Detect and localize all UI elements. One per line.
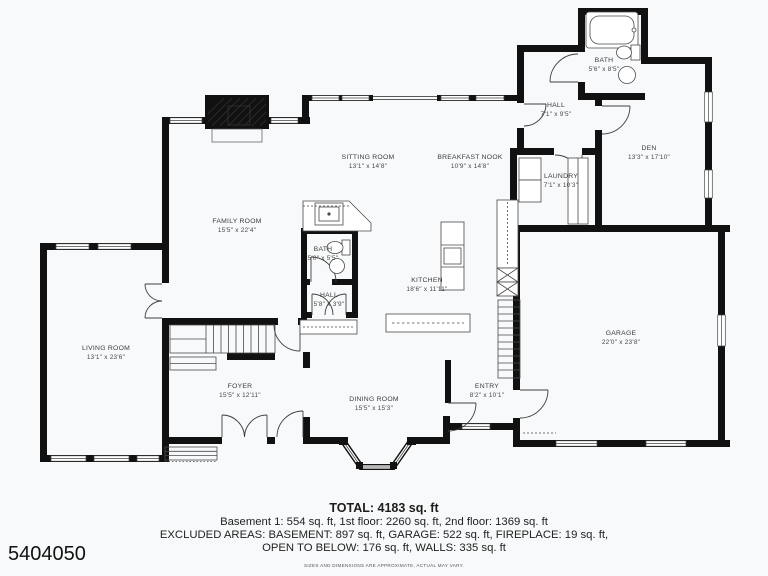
- room-label-bath-upper: BATH 5'6" x 8'5": [589, 57, 620, 74]
- floor-areas: Basement 1: 554 sq. ft, 1st floor: 2260 …: [0, 517, 768, 529]
- room-label-laundry: LAUNDRY 7'1" x 10'3": [544, 173, 579, 190]
- area-summary: TOTAL: 4183 sq. ft Basement 1: 554 sq. f…: [0, 501, 768, 568]
- washer: [519, 158, 541, 180]
- room-label-hall-middle: HALL 5'8" x 3'9": [314, 292, 345, 309]
- porch-steps: [165, 447, 217, 462]
- room-label-dining-room: DINING ROOM 15'5" x 15'3": [349, 396, 399, 413]
- total-area: TOTAL: 4183 sq. ft: [0, 501, 768, 515]
- floor-plan-page: SITTING ROOM 13'1" x 14'8" BREAKFAST NOO…: [0, 0, 768, 576]
- room-label-breakfast-nook: BREAKFAST NOOK 10'9" x 14'8": [437, 154, 502, 171]
- room-label-garage: GARAGE 22'0" x 23'8": [602, 330, 640, 347]
- toilet-tank: [631, 45, 640, 60]
- room-label-sitting-room: SITTING ROOM 13'1" x 14'8": [342, 154, 395, 171]
- bay-window: [339, 437, 416, 469]
- tub-faucet: [632, 28, 636, 32]
- excluded-areas-cont: OPEN TO BELOW: 176 sq. ft, WALLS: 335 sq…: [0, 543, 768, 555]
- room-label-den: DEN 13'3" x 17'10": [628, 145, 670, 162]
- room-label-living-room: LIVING ROOM 13'1" x 23'6": [82, 345, 130, 362]
- floor-plan-drawing: [0, 0, 768, 576]
- pedestal-sink: [619, 67, 636, 84]
- room-label-kitchen: KITCHEN 18'6" x 11'11": [406, 277, 447, 294]
- room-label-bath-middle: BATH 5'0" x 5'5": [308, 246, 339, 263]
- excluded-areas: EXCLUDED AREAS: BASEMENT: 897 sq. ft, GA…: [0, 530, 768, 542]
- room-label-hall-upper: HALL 7'1" x 9'5": [541, 102, 572, 119]
- room-label-foyer: FOYER 15'5" x 12'11": [219, 383, 261, 400]
- disclaimer-text: SIZES AND DIMENSIONS ARE APPROXIMATE, AC…: [0, 563, 768, 568]
- back-staircase: [498, 300, 556, 433]
- listing-id: 5404050: [8, 543, 86, 566]
- room-label-entry: ENTRY 8'2" x 10'1": [470, 383, 505, 400]
- main-staircase: [170, 325, 275, 370]
- room-label-family-room: FAMILY ROOM 15'5" x 22'4": [212, 218, 261, 235]
- dryer: [519, 180, 541, 202]
- hearth: [212, 129, 262, 142]
